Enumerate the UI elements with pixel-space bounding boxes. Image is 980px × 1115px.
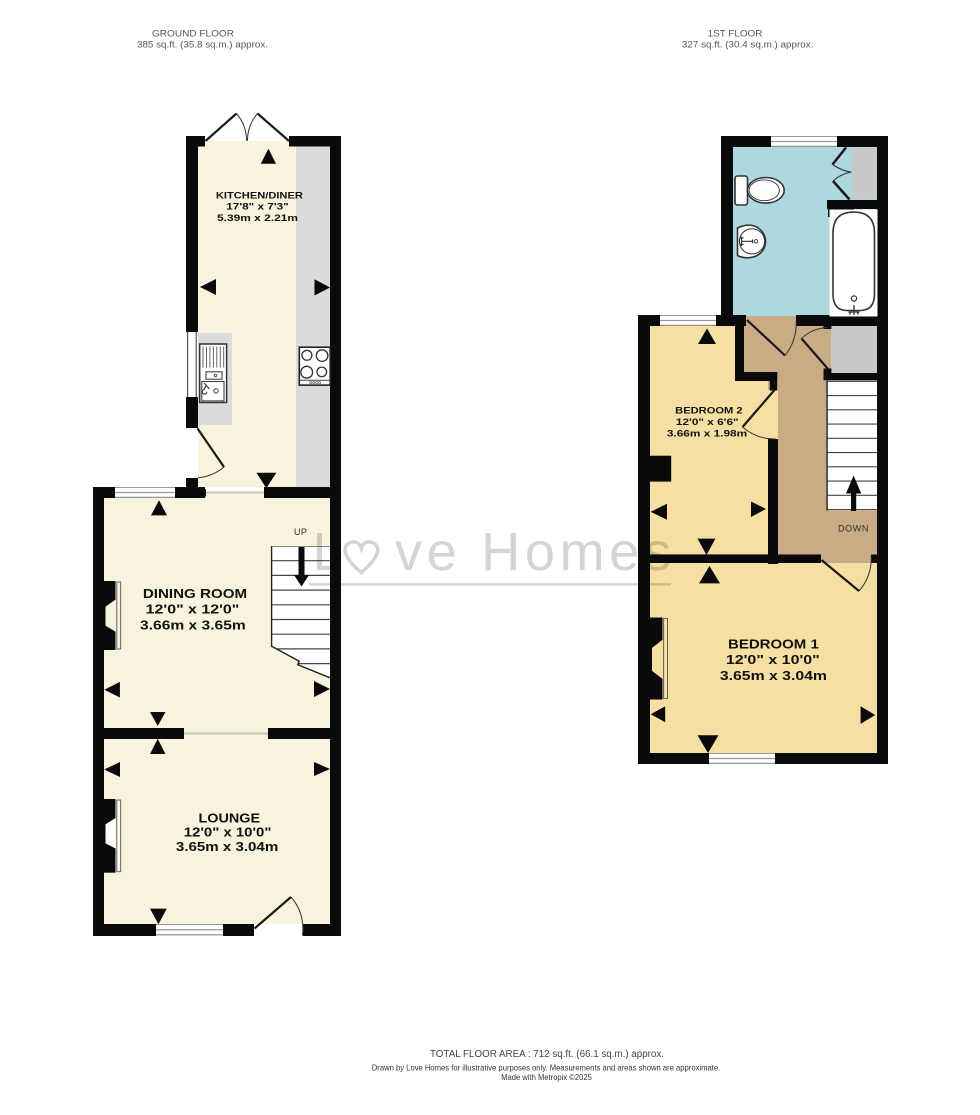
svg-text:TOTAL FLOOR AREA : 712 sq.ft.: TOTAL FLOOR AREA : 712 sq.ft. (66.1 sq.m… <box>430 1049 664 1060</box>
svg-text:12'0" x 10'0": 12'0" x 10'0" <box>726 652 820 667</box>
svg-text:385 sq.ft. (35.8 sq.m.) approx: 385 sq.ft. (35.8 sq.m.) approx. <box>137 40 268 51</box>
svg-text:Drawn by Love Homes for illust: Drawn by Love Homes for illustrative pur… <box>372 1064 721 1073</box>
svg-text:3.66m x 1.98m: 3.66m x 1.98m <box>667 428 747 439</box>
svg-text:Made with Metropix ©2025: Made with Metropix ©2025 <box>501 1073 592 1082</box>
svg-text:12'0" x 10'0": 12'0" x 10'0" <box>184 824 272 839</box>
svg-text:1ST FLOOR: 1ST FLOOR <box>708 29 763 40</box>
svg-text:3.65m x 3.04m: 3.65m x 3.04m <box>176 839 278 854</box>
svg-text:12'0" x 12'0": 12'0" x 12'0" <box>146 602 240 617</box>
svg-text:327 sq.ft. (30.4 sq.m.) approx: 327 sq.ft. (30.4 sq.m.) approx. <box>682 40 814 51</box>
svg-text:GROUND FLOOR: GROUND FLOOR <box>152 29 234 40</box>
svg-text:5.39m x 2.21m: 5.39m x 2.21m <box>217 213 298 224</box>
svg-text:DOWN: DOWN <box>838 524 869 534</box>
svg-text:BEDROOM 2: BEDROOM 2 <box>675 406 742 417</box>
svg-text:UP: UP <box>294 527 308 537</box>
svg-text:3.66m x 3.65m: 3.66m x 3.65m <box>140 617 246 632</box>
svg-text:BEDROOM 1: BEDROOM 1 <box>728 637 819 652</box>
svg-text:LOUNGE: LOUNGE <box>199 810 261 825</box>
svg-text:KITCHEN/DINER: KITCHEN/DINER <box>216 191 303 202</box>
svg-text:3.65m x 3.04m: 3.65m x 3.04m <box>720 668 827 683</box>
svg-text:DINING ROOM: DINING ROOM <box>143 586 247 601</box>
svg-text:17'8" x 7'3": 17'8" x 7'3" <box>226 202 289 213</box>
svg-text:ve Homes: ve Homes <box>395 522 671 582</box>
svg-text:12'0" x 6'6": 12'0" x 6'6" <box>676 417 739 428</box>
